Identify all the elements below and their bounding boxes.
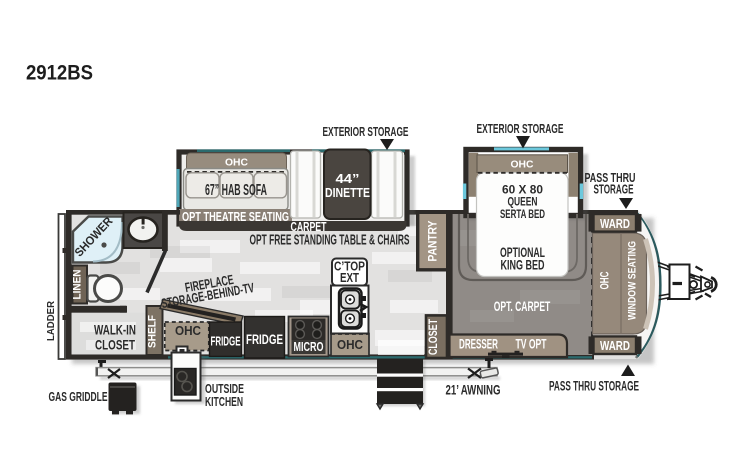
svg-text:WARD: WARD xyxy=(600,339,630,353)
svg-text:44”: 44” xyxy=(336,171,360,186)
svg-text:OPT FREE STANDING TABLE & CHAI: OPT FREE STANDING TABLE & CHAIRS xyxy=(250,233,410,249)
svg-text:2912BS: 2912BS xyxy=(26,61,93,85)
svg-text:LINEN: LINEN xyxy=(71,269,83,299)
svg-text:EXTERIOR STORAGE: EXTERIOR STORAGE xyxy=(477,121,564,136)
svg-text:OPT. CARPET: OPT. CARPET xyxy=(494,299,551,314)
svg-text:DRESSER: DRESSER xyxy=(459,335,498,351)
svg-text:OHC: OHC xyxy=(598,271,612,289)
svg-text:WALK-IN: WALK-IN xyxy=(94,321,136,337)
svg-text:EXTERIOR STORAGE: EXTERIOR STORAGE xyxy=(323,124,409,139)
svg-text:FRIDGE: FRIDGE xyxy=(211,334,241,348)
svg-text:WARD: WARD xyxy=(600,217,630,231)
svg-text:STORAGE: STORAGE xyxy=(594,182,634,196)
svg-text:OHC: OHC xyxy=(175,324,201,338)
svg-text:OHC: OHC xyxy=(225,156,248,168)
svg-text:DINETTE: DINETTE xyxy=(325,185,370,200)
svg-text:CLOSET: CLOSET xyxy=(95,337,135,353)
svg-text:KING BED: KING BED xyxy=(501,257,545,272)
svg-text:67” HAB SOFA: 67” HAB SOFA xyxy=(205,182,267,199)
svg-text:MICRO: MICRO xyxy=(294,339,324,354)
svg-text:QUEEN: QUEEN xyxy=(508,197,538,209)
svg-text:21’ AWNING: 21’ AWNING xyxy=(446,383,501,398)
svg-text:GAS GRIDDLE: GAS GRIDDLE xyxy=(49,389,108,404)
svg-text:WINDOW SEATING: WINDOW SEATING xyxy=(627,241,639,320)
svg-text:OHC: OHC xyxy=(337,338,363,352)
svg-text:FRIDGE: FRIDGE xyxy=(246,332,283,347)
svg-text:KITCHEN: KITCHEN xyxy=(205,394,243,409)
svg-text:EXT: EXT xyxy=(340,271,359,285)
svg-text:LADDER: LADDER xyxy=(45,301,57,341)
svg-text:PANTRY: PANTRY xyxy=(426,221,440,262)
svg-text:60 X 80: 60 X 80 xyxy=(502,185,543,197)
svg-text:PASS THRU STORAGE: PASS THRU STORAGE xyxy=(549,378,639,393)
svg-text:TV OPT: TV OPT xyxy=(516,335,547,351)
svg-text:SHELF: SHELF xyxy=(146,315,158,348)
svg-text:CLOSET: CLOSET xyxy=(426,319,440,355)
svg-text:SERTA BED: SERTA BED xyxy=(500,209,545,221)
svg-text:OHC: OHC xyxy=(511,159,534,171)
